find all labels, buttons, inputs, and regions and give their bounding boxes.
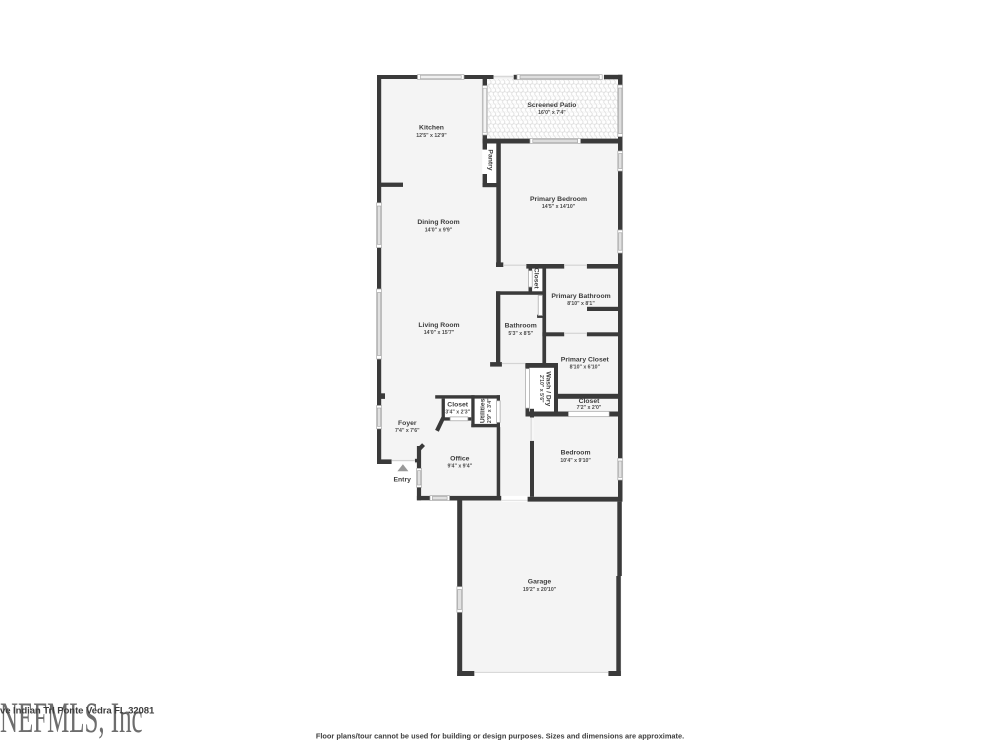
svg-text:2'10" x 5'6": 2'10" x 5'6" (538, 375, 544, 403)
svg-text:Bedroom: Bedroom (561, 450, 591, 457)
svg-text:8'10" x 6'10": 8'10" x 6'10" (570, 365, 601, 371)
svg-text:Foyer: Foyer (398, 420, 417, 427)
svg-text:Closet: Closet (579, 398, 601, 405)
svg-text:Primary Bedroom: Primary Bedroom (530, 196, 587, 203)
svg-text:16'0" x 7'4": 16'0" x 7'4" (538, 110, 566, 116)
svg-text:5'3" x 8'5": 5'3" x 8'5" (508, 331, 533, 337)
svg-text:Floor plans/tour cannot be use: Floor plans/tour cannot be used for buil… (316, 732, 684, 741)
svg-text:Office: Office (450, 455, 469, 462)
svg-text:Closet: Closet (533, 268, 540, 290)
svg-text:Kitchen: Kitchen (419, 125, 444, 132)
svg-text:Primary Bathroom: Primary Bathroom (551, 293, 610, 300)
svg-text:Closet: Closet (447, 402, 469, 409)
svg-text:10'4" x 9'10": 10'4" x 9'10" (560, 458, 591, 464)
svg-text:Wash / Dry: Wash / Dry (544, 371, 551, 406)
svg-text:Garage: Garage (528, 579, 552, 586)
svg-text:Primary Closet: Primary Closet (561, 356, 610, 363)
svg-text:7'2" x 2'0": 7'2" x 2'0" (577, 405, 602, 411)
svg-text:Bathroom: Bathroom (505, 323, 537, 330)
svg-text:Screened Patio: Screened Patio (527, 102, 576, 109)
svg-text:Entry: Entry (394, 477, 412, 484)
svg-text:Utilities: Utilities (479, 398, 486, 423)
svg-text:ve Indian Trl Ponte Vedra FL 3: ve Indian Trl Ponte Vedra FL 32081 (0, 706, 155, 717)
svg-text:Dining Room: Dining Room (417, 219, 459, 226)
svg-text:12'5" x 12'9": 12'5" x 12'9" (416, 133, 447, 139)
svg-text:19'2" x 20'10": 19'2" x 20'10" (523, 587, 557, 593)
svg-text:Pantry: Pantry (486, 149, 493, 170)
svg-text:14'0" x 15'7": 14'0" x 15'7" (424, 330, 455, 336)
svg-text:14'0" x 9'9": 14'0" x 9'9" (425, 228, 453, 234)
svg-text:9'4" x 9'4": 9'4" x 9'4" (447, 464, 472, 470)
svg-text:14'5" x 14'10": 14'5" x 14'10" (542, 204, 576, 210)
svg-text:3'4" x 2'3": 3'4" x 2'3" (445, 409, 470, 415)
svg-text:2'9" x 3'4": 2'9" x 3'4" (487, 398, 493, 423)
svg-text:NEFMLS, Inc: NEFMLS, Inc (0, 694, 143, 742)
svg-text:Living Room: Living Room (418, 322, 459, 329)
svg-text:8'10" x 8'1": 8'10" x 8'1" (567, 301, 595, 307)
svg-text:7'4" x 7'6": 7'4" x 7'6" (395, 428, 420, 434)
